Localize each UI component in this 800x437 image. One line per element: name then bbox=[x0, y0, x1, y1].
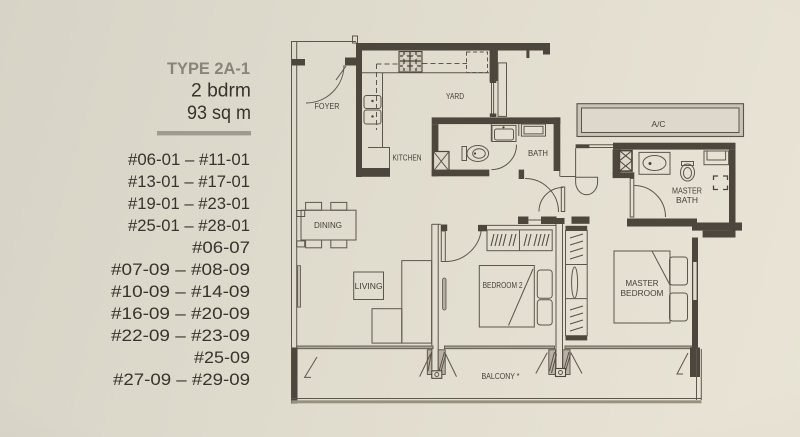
svg-text:#13-01 – #17-01: #13-01 – #17-01 bbox=[128, 172, 250, 191]
svg-text:MASTER: MASTER bbox=[626, 279, 659, 288]
svg-text:TYPE 2A-1: TYPE 2A-1 bbox=[167, 60, 250, 78]
svg-text:#25-01 – #28-01: #25-01 – #28-01 bbox=[128, 216, 250, 235]
svg-text:MASTER: MASTER bbox=[672, 187, 702, 196]
svg-text:BATH: BATH bbox=[676, 196, 698, 205]
svg-text:#06-01 – #11-01: #06-01 – #11-01 bbox=[128, 150, 250, 169]
svg-text:LIVING: LIVING bbox=[355, 282, 383, 291]
svg-text:#25-09: #25-09 bbox=[194, 348, 250, 367]
svg-text:BATH: BATH bbox=[528, 149, 548, 158]
svg-text:#07-09 – #08-09: #07-09 – #08-09 bbox=[111, 260, 250, 279]
svg-text:FOYER: FOYER bbox=[315, 102, 340, 111]
svg-text:A/C: A/C bbox=[652, 120, 666, 129]
svg-text:KITCHEN: KITCHEN bbox=[393, 154, 422, 163]
svg-text:BALCONY *: BALCONY * bbox=[482, 372, 520, 381]
svg-text:#06-07: #06-07 bbox=[192, 238, 250, 257]
svg-text:2 bdrm: 2 bdrm bbox=[191, 80, 251, 102]
svg-text:BEDROOM: BEDROOM bbox=[621, 289, 664, 298]
svg-text:YARD: YARD bbox=[446, 92, 464, 101]
svg-text:#16-09 – #20-09: #16-09 – #20-09 bbox=[111, 304, 250, 323]
svg-text:#22-09 – #23-09: #22-09 – #23-09 bbox=[111, 326, 250, 345]
svg-text:93 sq m: 93 sq m bbox=[187, 102, 251, 124]
svg-text:#27-09 – #29-09: #27-09 – #29-09 bbox=[113, 370, 250, 389]
svg-text:#19-01 – #23-01: #19-01 – #23-01 bbox=[128, 194, 250, 213]
svg-text:DINING: DINING bbox=[314, 221, 342, 230]
svg-text:BEDROOM 2: BEDROOM 2 bbox=[483, 281, 523, 290]
svg-text:#10-09 – #14-09: #10-09 – #14-09 bbox=[111, 282, 250, 301]
